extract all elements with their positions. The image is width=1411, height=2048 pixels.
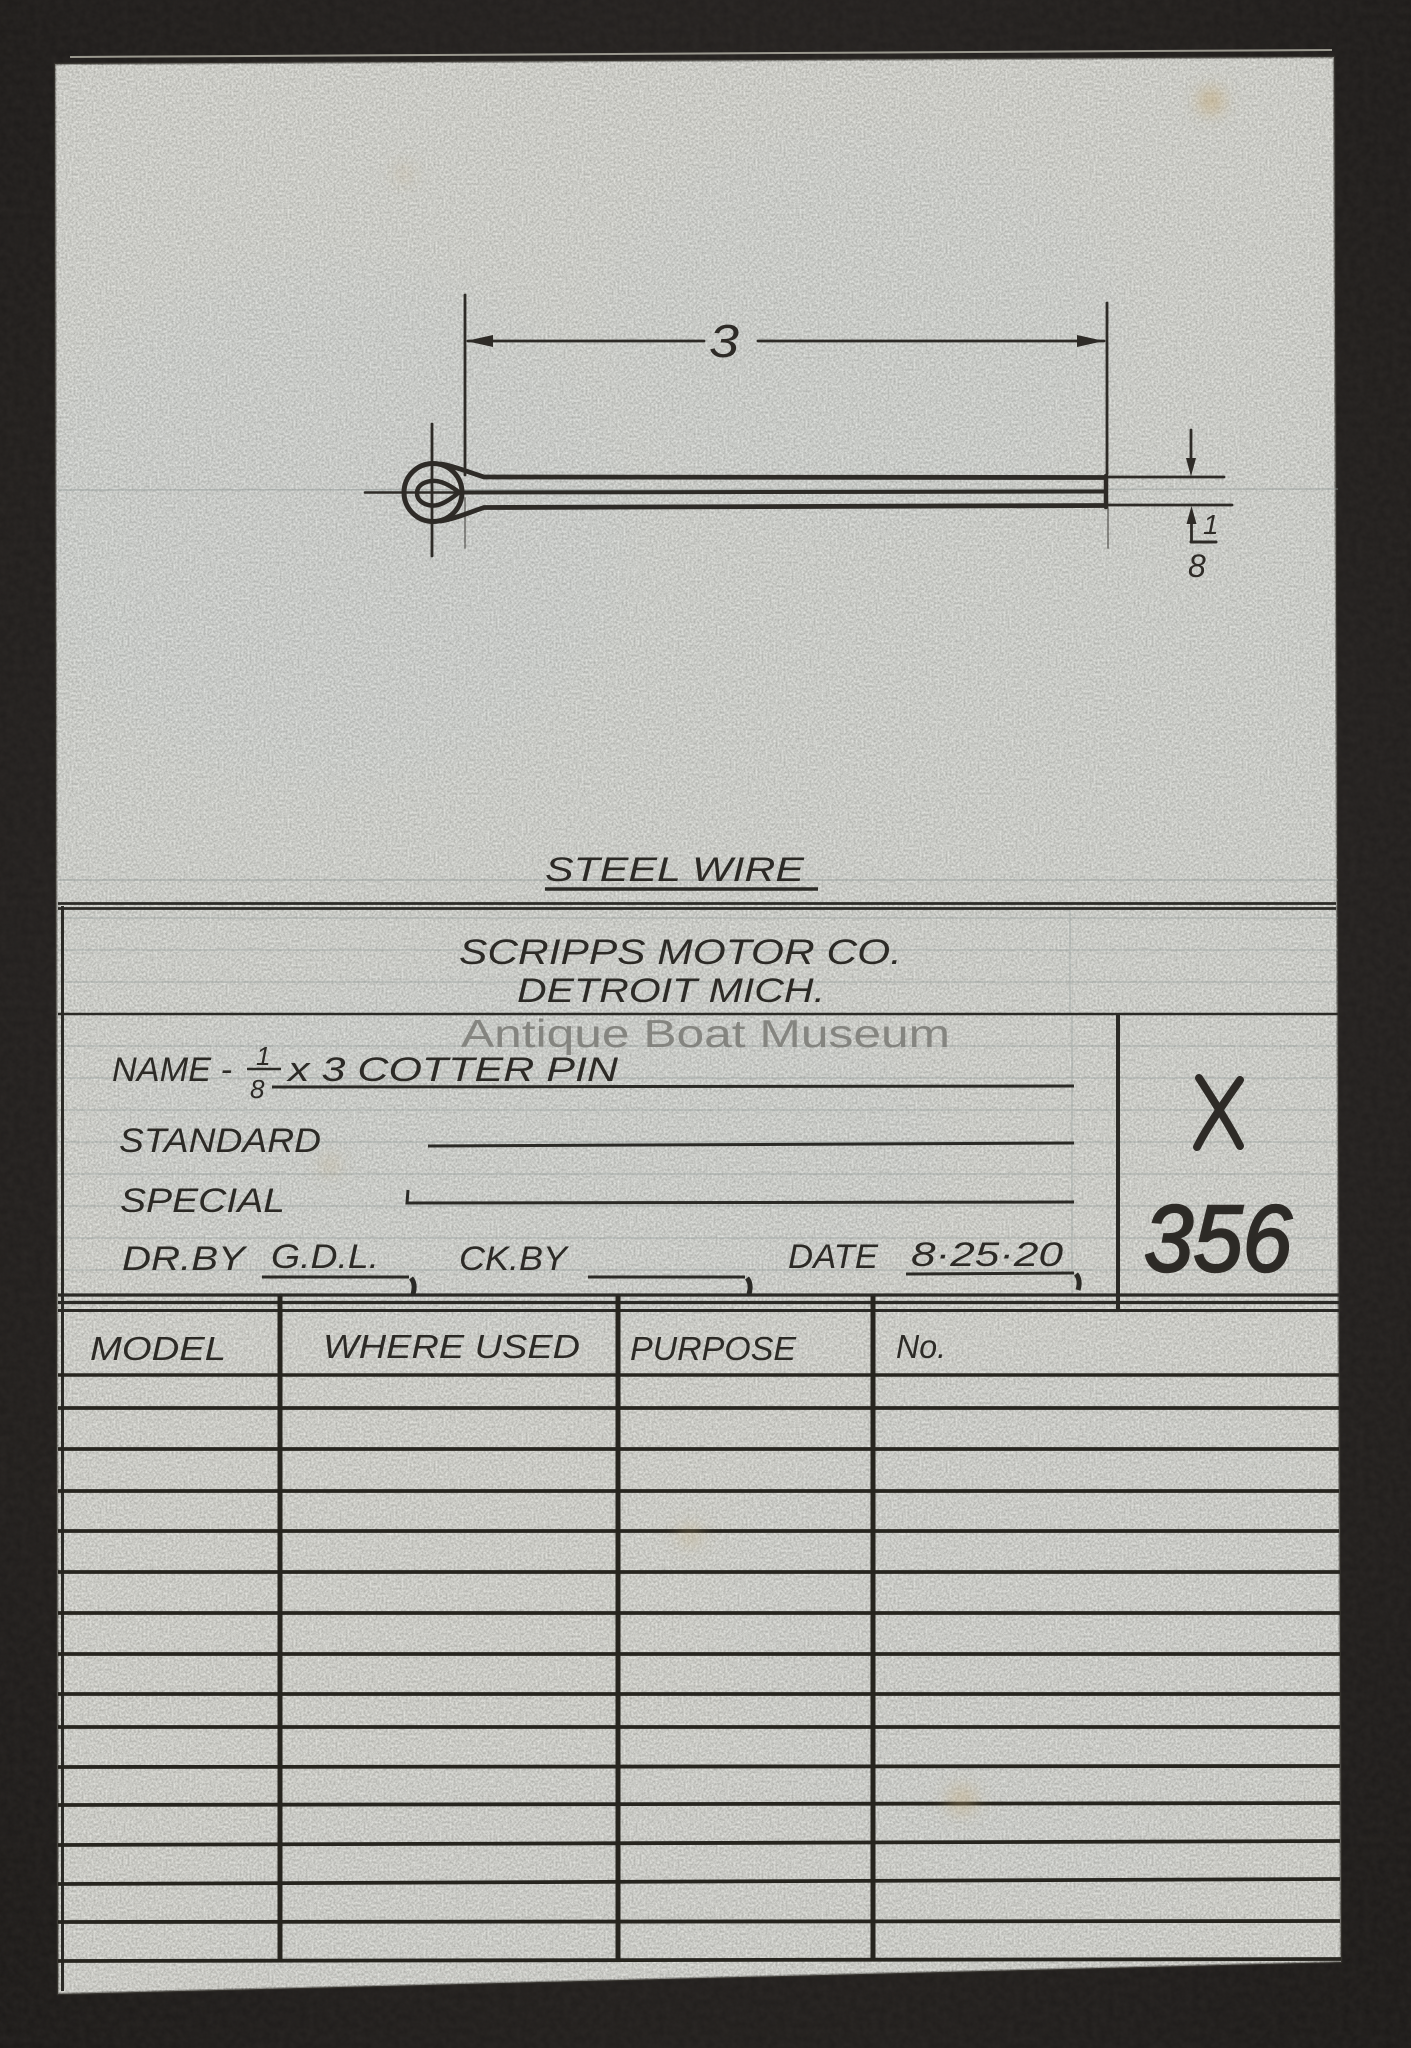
svg-text:PURPOSE: PURPOSE [630,1330,797,1367]
svg-text:CK.BY: CK.BY [459,1240,569,1278]
svg-text:WHERE USED: WHERE USED [323,1328,580,1365]
svg-text:DETROIT MICH.: DETROIT MICH. [517,972,825,1010]
svg-text:8·25·20: 8·25·20 [911,1236,1063,1274]
svg-text:NAME -: NAME - [112,1051,232,1089]
svg-text:x 3 COTTER PIN: x 3 COTTER PIN [285,1051,618,1089]
svg-text:MODEL: MODEL [90,1330,226,1367]
svg-text:8: 8 [1188,548,1206,584]
svg-text:1: 1 [256,1041,270,1071]
svg-text:3: 3 [709,315,739,367]
svg-text:Antique Boat Museum: Antique Boat Museum [461,1013,950,1056]
svg-text:DATE: DATE [788,1238,878,1276]
svg-text:G.D.L.: G.D.L. [271,1238,379,1276]
svg-text:SPECIAL: SPECIAL [120,1182,285,1220]
svg-text:No.: No. [896,1328,946,1365]
svg-text:STANDARD: STANDARD [119,1122,321,1160]
svg-text:DR.BY: DR.BY [122,1240,248,1278]
svg-text:STEEL WIRE: STEEL WIRE [545,851,804,889]
svg-text:8: 8 [250,1074,265,1104]
svg-text:SCRIPPS MOTOR CO.: SCRIPPS MOTOR CO. [459,933,902,972]
svg-text:1: 1 [1203,509,1219,540]
svg-text:356: 356 [1144,1186,1292,1292]
